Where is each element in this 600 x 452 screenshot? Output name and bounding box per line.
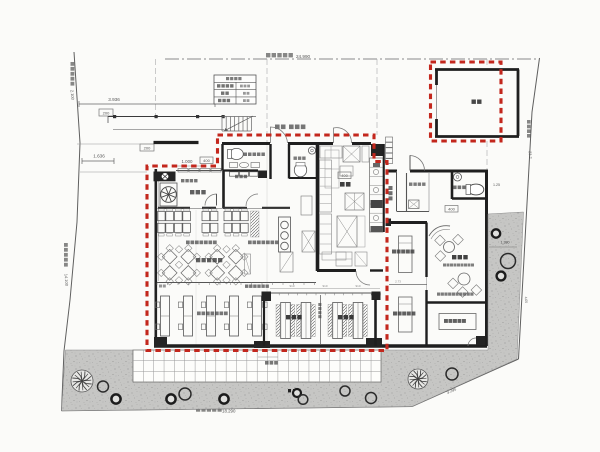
svg-text:1.000: 1.000 [182,159,194,164]
svg-text:910: 910 [322,284,327,288]
svg-text:24.990: 24.990 [296,54,310,59]
svg-text:910: 910 [355,284,360,288]
svg-text:4.05: 4.05 [524,296,529,303]
svg-text:14.100: 14.100 [64,274,70,287]
svg-text:400: 400 [341,173,348,178]
svg-text:200: 200 [103,111,110,116]
svg-text:1.380: 1.380 [501,241,510,245]
svg-text:400: 400 [448,207,455,212]
svg-text:18.290: 18.290 [222,409,236,414]
svg-text:200: 200 [144,146,151,151]
svg-text:1.25: 1.25 [493,183,500,187]
svg-text:23.2: 23.2 [528,151,532,159]
svg-text:400: 400 [203,158,210,163]
svg-text:910: 910 [289,284,294,288]
svg-text:2.73: 2.73 [395,280,401,284]
svg-text:1.636: 1.636 [93,154,105,159]
svg-text:3.936: 3.936 [108,97,120,102]
